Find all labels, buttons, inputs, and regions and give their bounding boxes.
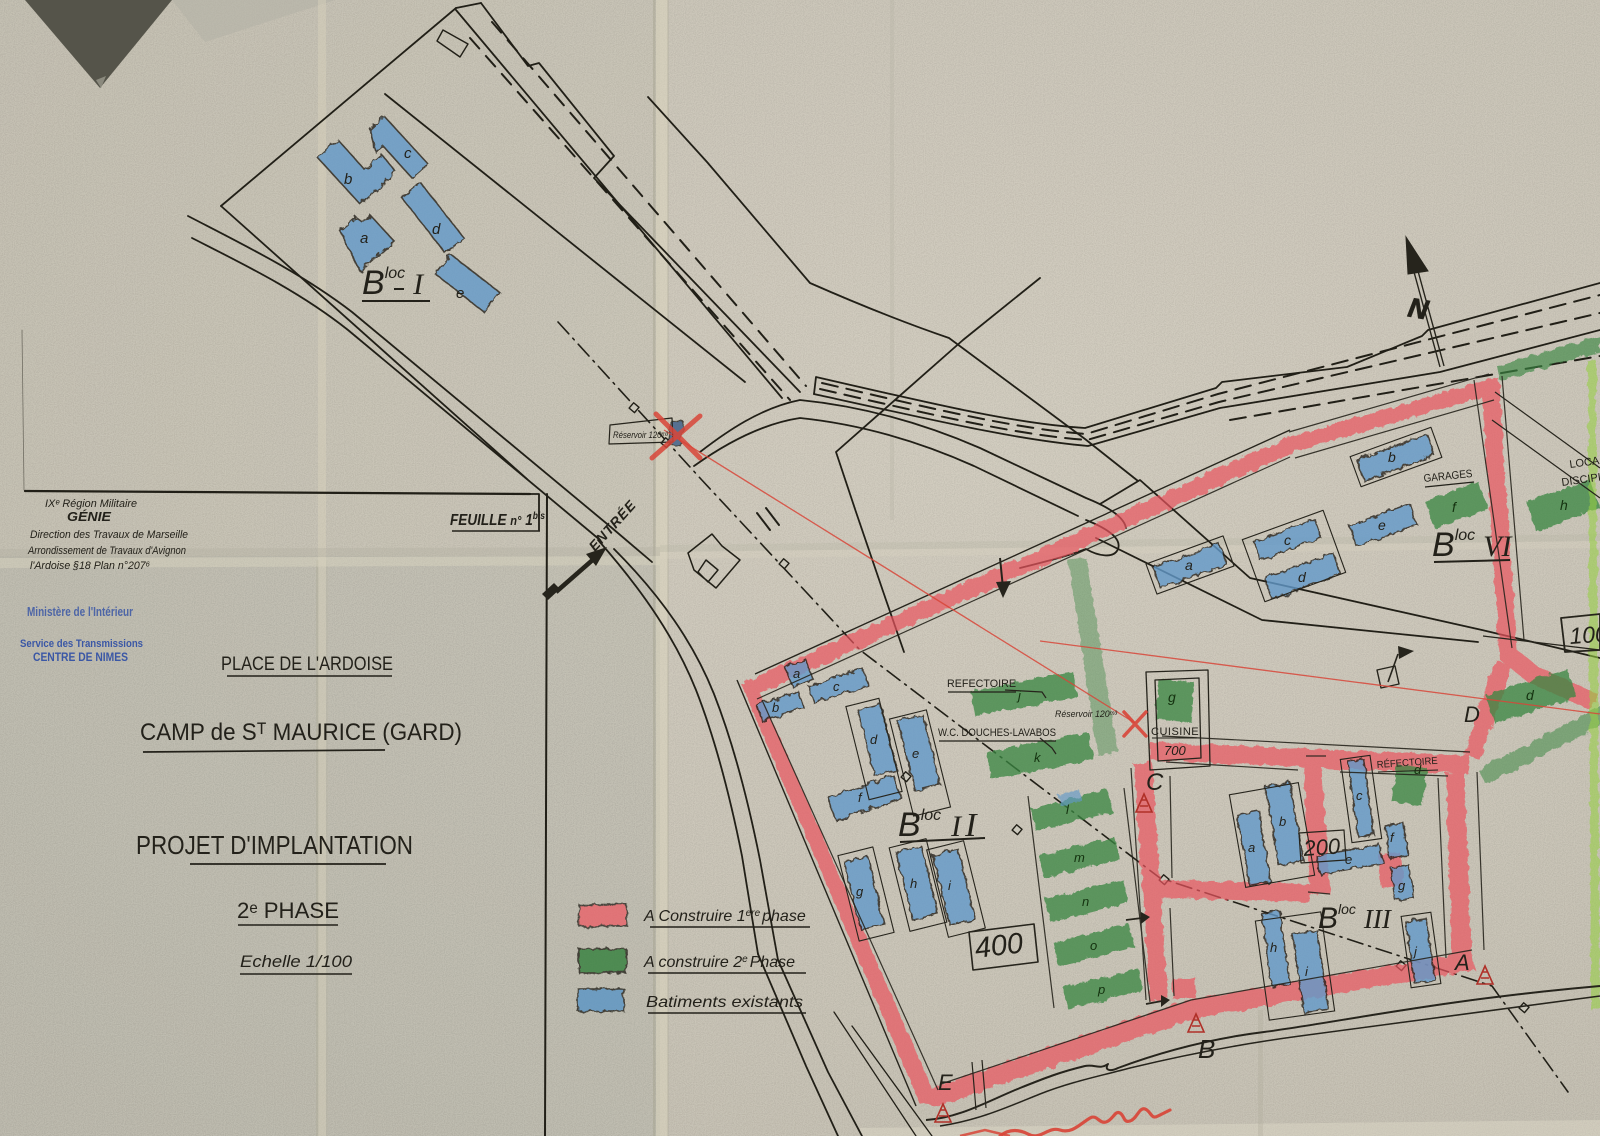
svg-text:g: g (1398, 878, 1406, 893)
svg-text:Réservoir 120ᵐ³: Réservoir 120ᵐ³ (613, 430, 669, 440)
svg-text:Ministère de l'Intérieur: Ministère de l'Intérieur (27, 604, 133, 619)
svg-text:A: A (1453, 950, 1470, 975)
svg-text:a: a (360, 230, 368, 247)
svg-text:400: 400 (973, 927, 1025, 965)
svg-text:a: a (1248, 840, 1255, 855)
svg-text:b: b (772, 700, 779, 715)
svg-text:h: h (1270, 940, 1277, 955)
svg-text:Direction des Travaux de Marse: Direction des Travaux de Marseille (30, 529, 188, 541)
svg-text:c: c (1356, 788, 1363, 803)
svg-text:100: 100 (1569, 620, 1600, 649)
svg-text:d: d (1298, 569, 1307, 585)
svg-text:700: 700 (1164, 743, 1186, 758)
svg-text:B: B (1198, 1034, 1215, 1064)
svg-text:p: p (1097, 982, 1105, 997)
svg-text:e: e (456, 285, 464, 302)
svg-text:h: h (910, 876, 917, 891)
svg-text:b: b (1388, 449, 1396, 465)
svg-text:m: m (1074, 850, 1085, 865)
svg-text:Batiments existants: Batiments existants (646, 994, 803, 1011)
svg-text:b: b (344, 171, 352, 188)
svg-text:C: C (1146, 769, 1164, 796)
svg-text:Arrondissement de Travaux d'Av: Arrondissement de Travaux d'Avignon (27, 545, 186, 557)
svg-text:PROJET D'IMPLANTATION: PROJET D'IMPLANTATION (136, 830, 413, 860)
svg-text:e: e (1378, 517, 1386, 533)
svg-text:l'Ardoise §18 Plan n°207⁶: l'Ardoise §18 Plan n°207⁶ (30, 560, 150, 572)
svg-text:Service des Transmissions: Service des Transmissions (20, 638, 143, 650)
svg-text:W.C. DOUCHES-LAVABOS: W.C. DOUCHES-LAVABOS (938, 727, 1056, 739)
svg-text:d: d (432, 221, 441, 238)
svg-text:D: D (1464, 702, 1480, 727)
svg-text:Réservoir 120ᵐ³: Réservoir 120ᵐ³ (1055, 709, 1118, 719)
svg-text:A construire 2ePhase: A construire 2ePhase (643, 954, 795, 971)
svg-text:d: d (1526, 687, 1535, 703)
svg-text:h: h (1560, 497, 1568, 513)
svg-text:n: n (1082, 894, 1089, 909)
svg-text:a: a (1185, 557, 1193, 573)
svg-text:200: 200 (1302, 833, 1342, 861)
svg-text:e: e (912, 746, 919, 761)
svg-text:A Construire 1erephase: A Construire 1erephase (643, 908, 806, 925)
svg-text:c: c (404, 145, 412, 162)
svg-text:d: d (870, 732, 878, 747)
svg-text:g: g (1168, 689, 1176, 705)
svg-text:E: E (938, 1070, 953, 1095)
svg-text:FEUILLE n° 1bis: FEUILLE n° 1bis (450, 511, 545, 529)
svg-text:PLACE DE L'ARDOISE: PLACE DE L'ARDOISE (221, 654, 393, 675)
svg-text:2ᵉ PHASE: 2ᵉ PHASE (237, 898, 339, 923)
svg-text:Echelle 1/100: Echelle 1/100 (240, 952, 353, 971)
svg-text:d: d (1414, 762, 1422, 777)
svg-text:CENTRE DE NIMES: CENTRE DE NIMES (33, 650, 128, 664)
svg-text:b: b (1279, 814, 1286, 829)
svg-text:GÉNIE: GÉNIE (67, 509, 111, 524)
svg-text:CAMP de Sᵀ MAURICE (GARD): CAMP de Sᵀ MAURICE (GARD) (140, 719, 462, 746)
svg-text:CUISINE: CUISINE (1151, 726, 1199, 738)
svg-text:o: o (1090, 938, 1097, 953)
svg-text:c: c (1284, 532, 1291, 548)
svg-text:a: a (793, 666, 800, 681)
svg-text:REFECTOIRE: REFECTOIRE (947, 678, 1016, 690)
svg-text:e: e (1345, 852, 1352, 867)
svg-text:c: c (833, 679, 840, 694)
svg-text:g: g (856, 884, 864, 899)
